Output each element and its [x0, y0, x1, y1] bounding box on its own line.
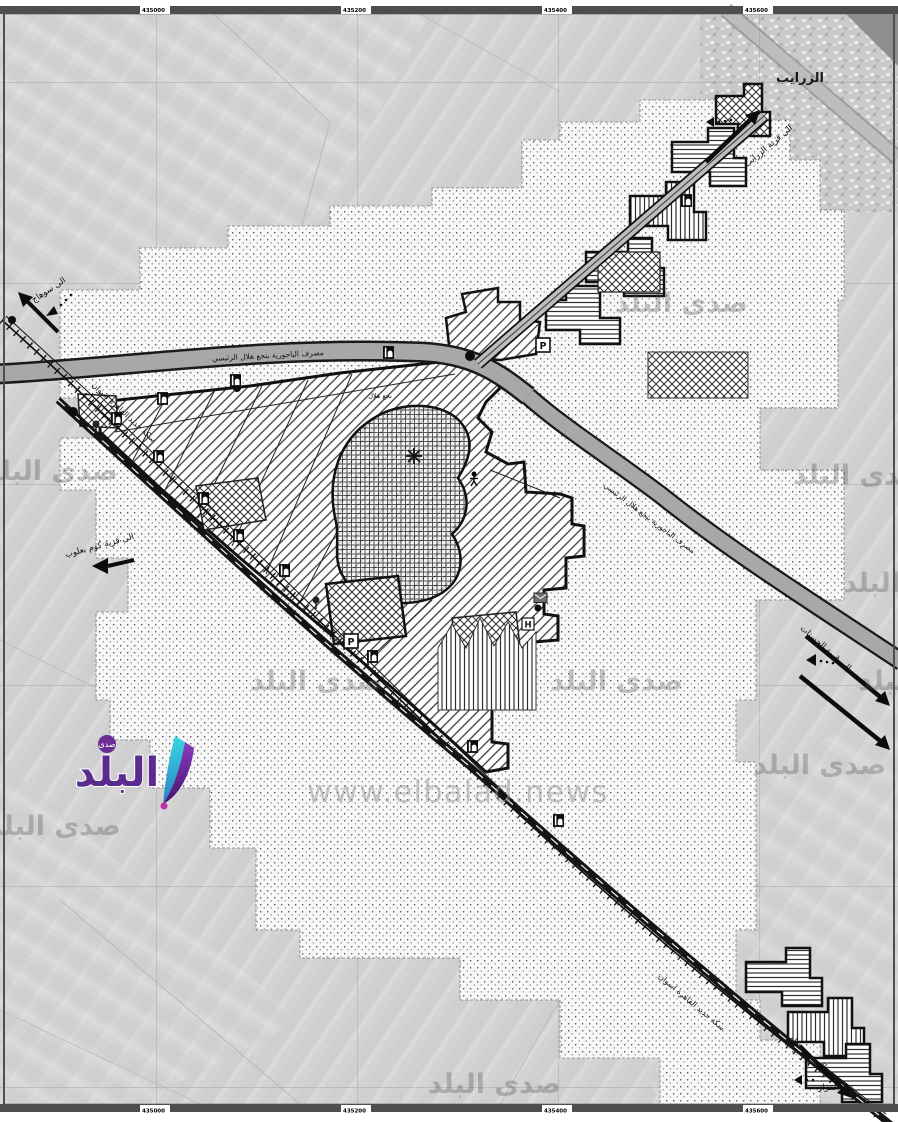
grid-coordinate-label: 435000	[142, 1109, 165, 1115]
mosque-icon	[233, 529, 244, 542]
hospital-letter: H	[524, 621, 531, 631]
parking-letter: P	[540, 341, 547, 352]
watermark-text: صدى البلد	[250, 666, 383, 697]
parking-marker-2: P	[344, 634, 358, 648]
village-core-polygon	[333, 406, 470, 603]
grid-coordinate-label: 435400	[544, 1109, 567, 1115]
watermark-text: صدى البلد	[843, 568, 898, 599]
mosque-icon	[279, 564, 290, 577]
mosque-icon	[467, 740, 478, 753]
crosshatch-patch	[326, 576, 406, 644]
crosshatch-patch	[648, 352, 748, 398]
mosque-icon	[383, 346, 394, 359]
mosque-icon	[157, 392, 168, 405]
watermark-text: صدى البلد	[550, 666, 683, 697]
mosque-icon	[367, 650, 378, 663]
grid-coordinate-label: 435200	[343, 8, 366, 14]
landmark-star-icon	[406, 448, 422, 464]
watermark-url: www.elbalad.news	[307, 775, 609, 810]
hospital-marker: H	[522, 618, 534, 631]
grid-coordinate-label: 435200	[343, 1109, 366, 1115]
watermark-text: صدى البلد	[858, 666, 898, 697]
grid-coordinate-label: 435600	[745, 1109, 768, 1115]
grid-coordinate-label: 435600	[745, 8, 768, 14]
grid-coordinate-label: 435400	[544, 8, 567, 14]
mosque-icon	[153, 450, 164, 463]
grid-coordinate-label: 435000	[142, 8, 165, 14]
facility-dot	[535, 605, 542, 612]
nag-qazzaz-label: نجع القزاز	[817, 1083, 854, 1093]
logo-badge-text: صدى	[98, 740, 115, 749]
watermark-text: صدى البلد	[615, 288, 748, 319]
watermark-text: صدى البلد	[753, 750, 886, 781]
watermark-text: صدى البلد	[0, 456, 118, 487]
map-canvas: P P H	[0, 0, 898, 1122]
core-village-label: نجع هلال	[368, 392, 392, 400]
village-name-label: الزرايب	[776, 71, 824, 86]
map-page: P P H	[0, 0, 898, 1122]
mosque-icon	[230, 374, 241, 387]
watermark-text: صدى البلد	[793, 460, 898, 491]
watermark-text: صدى البلد	[0, 811, 121, 842]
village-core	[333, 406, 470, 603]
mosque-icon	[198, 492, 209, 505]
watermark-text: صدى البلد	[428, 1069, 561, 1100]
parking-letter: P	[348, 637, 355, 648]
logo-wordmark: البلد	[75, 750, 160, 796]
mosque-icon	[553, 814, 564, 827]
post-office-icon	[534, 593, 547, 603]
mosque-icon	[681, 194, 692, 207]
parking-marker: P	[536, 338, 550, 352]
